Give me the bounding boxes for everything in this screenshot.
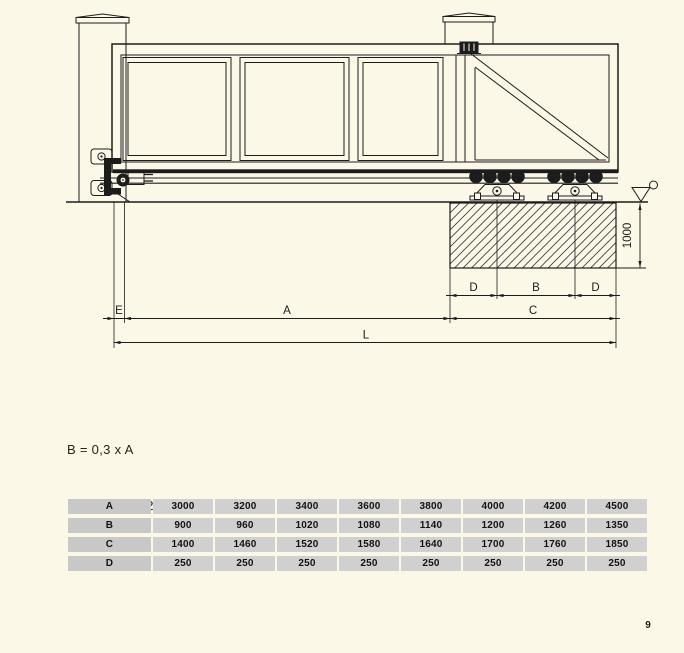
dim-row-dbd: D B D	[446, 282, 620, 297]
table-cell: 4500	[587, 499, 647, 514]
table-cell: 1200	[463, 518, 523, 533]
dim-label-l: L	[363, 330, 370, 342]
table-cell: 1140	[401, 518, 461, 533]
foundation-block	[450, 203, 646, 268]
table-cell: 250	[215, 556, 275, 571]
table-cell: 3600	[339, 499, 399, 514]
table-cell: 250	[587, 556, 647, 571]
table-cell: 250	[339, 556, 399, 571]
dim-label-c: C	[529, 305, 537, 317]
table-row-label-c: C	[68, 537, 151, 552]
table-row-label-d: D	[68, 556, 151, 571]
table-cell: 4000	[463, 499, 523, 514]
sliding-gate-technical-drawing: 1000 D B D	[0, 0, 684, 390]
dim-row-eac: E A C	[103, 305, 620, 320]
table-cell: 3000	[153, 499, 213, 514]
table-cell: 1350	[587, 518, 647, 533]
table-cell: 250	[153, 556, 213, 571]
table-cell: 1520	[277, 537, 337, 552]
table-cell: 1760	[525, 537, 585, 552]
roller-carriage-2	[547, 170, 603, 200]
table-cell: 1850	[587, 537, 647, 552]
table-cell: 3800	[401, 499, 461, 514]
table-cell: 1020	[277, 518, 337, 533]
right-post	[443, 13, 495, 44]
table-cell: 250	[525, 556, 585, 571]
dim-label-d-right: D	[591, 282, 599, 294]
table-cell: 3400	[277, 499, 337, 514]
gate-panel-2	[240, 58, 349, 161]
table-cell: 1400	[153, 537, 213, 552]
table-cell: 1080	[339, 518, 399, 533]
table-row-label-b: B	[68, 518, 151, 533]
table-cell: 960	[215, 518, 275, 533]
table-cell: 1580	[339, 537, 399, 552]
table-cell: 250	[401, 556, 461, 571]
dim-label-a: A	[283, 305, 291, 317]
upper-guide-rollers	[457, 42, 481, 54]
dim-label-1000: 1000	[622, 223, 634, 249]
roller-carriage-1	[469, 170, 525, 200]
table-cell: 4200	[525, 499, 585, 514]
dimension-table: A 3000 3200 3400 3600 3800 4000 4200 450…	[68, 499, 647, 571]
table-cell: 3200	[215, 499, 275, 514]
dim-label-b: B	[532, 282, 540, 294]
table-cell: 1640	[401, 537, 461, 552]
gate-panel-1	[123, 58, 231, 161]
dim-label-d-left: D	[469, 282, 477, 294]
table-cell: 1260	[525, 518, 585, 533]
guide-bracket	[91, 149, 153, 202]
dim-label-e: E	[115, 305, 123, 317]
level-datum-icon	[632, 181, 658, 202]
table-cell: 1460	[215, 537, 275, 552]
dim-row-l: L	[114, 330, 616, 345]
table-cell: 250	[277, 556, 337, 571]
table-row-label-a: A	[68, 499, 151, 514]
table-cell: 1700	[463, 537, 523, 552]
catalog-page: 1000 D B D	[0, 0, 684, 653]
dim-depth-1000: 1000	[622, 204, 642, 268]
track-rail	[100, 169, 618, 183]
formula-b: B = 0,3 x A	[67, 441, 207, 460]
page-number: 9	[640, 620, 656, 631]
tail-diagonal-brace	[466, 50, 608, 160]
gate-panel-3	[358, 58, 443, 161]
table-cell: 250	[463, 556, 523, 571]
table-cell: 900	[153, 518, 213, 533]
